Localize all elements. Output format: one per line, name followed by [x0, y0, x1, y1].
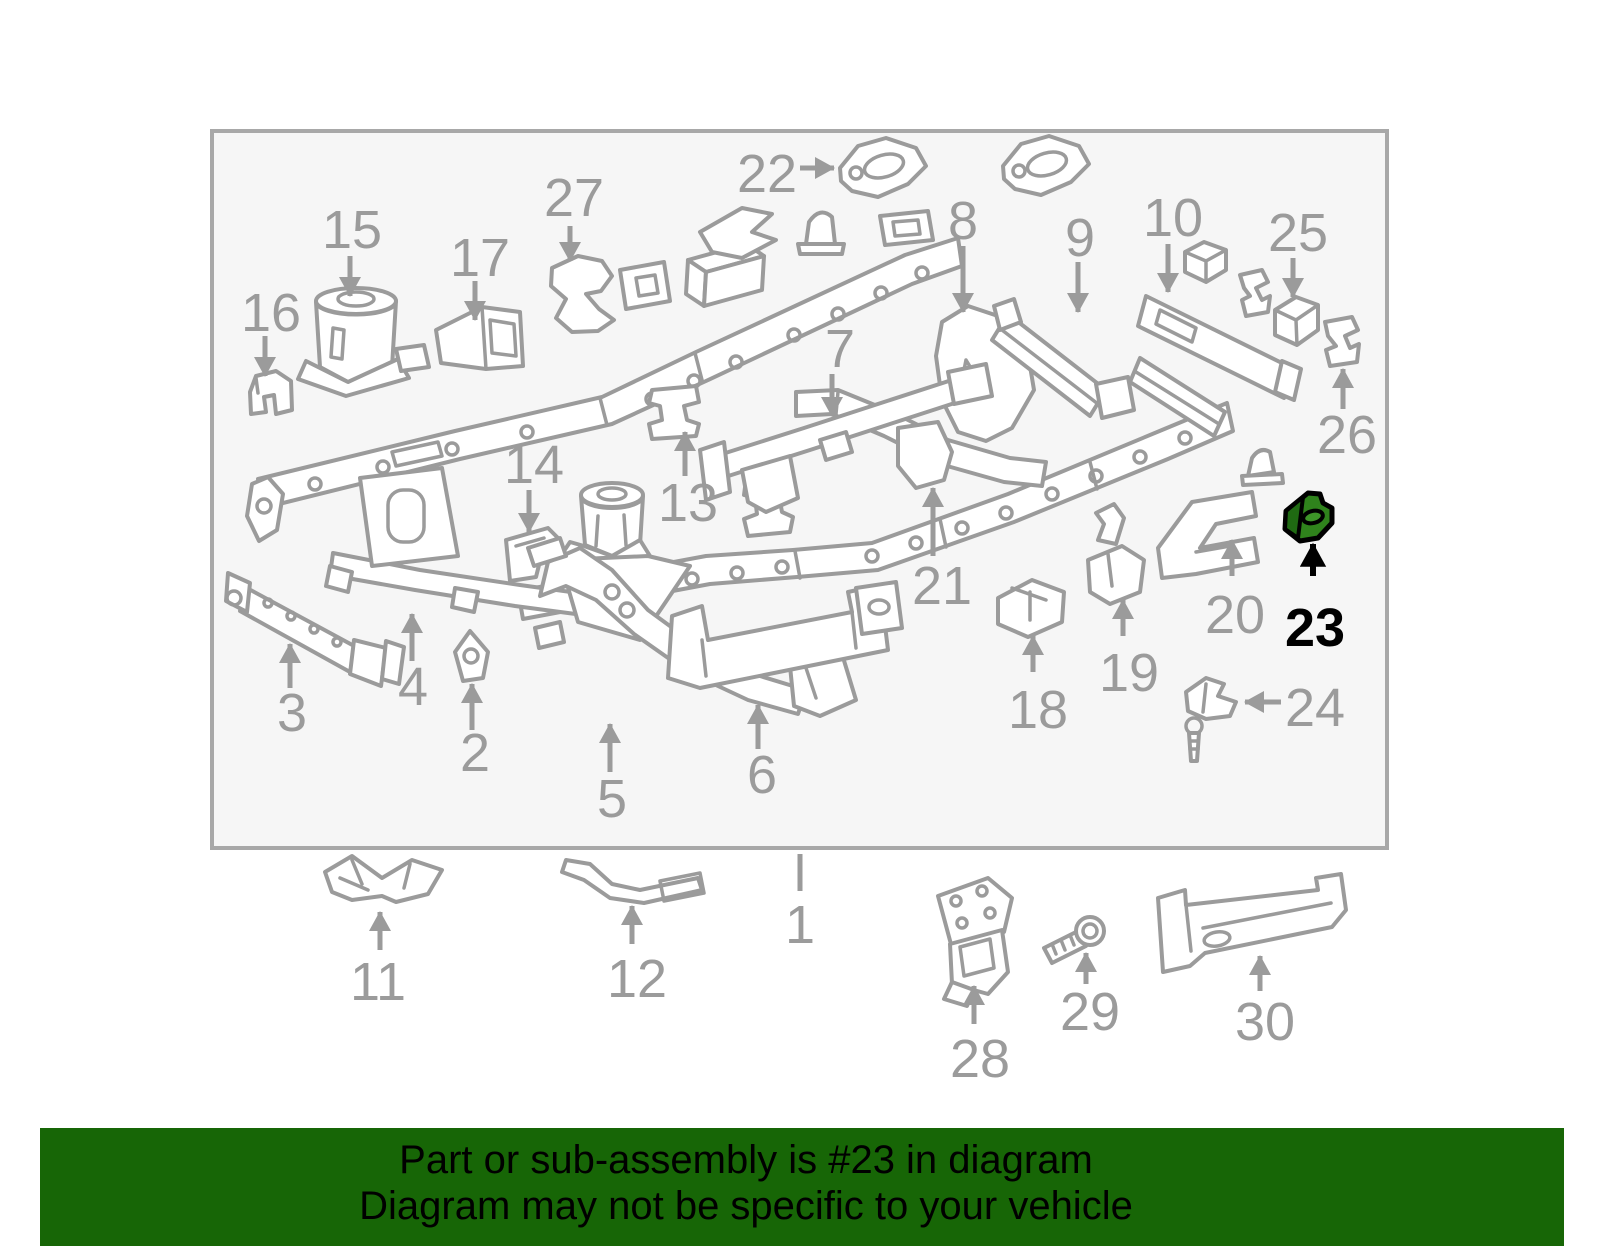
part-label-25: 25 — [1268, 203, 1328, 263]
part-label-14: 14 — [504, 435, 564, 495]
banner-line2: Diagram may not be specific to your vehi… — [40, 1183, 1452, 1229]
part-label-26: 26 — [1317, 405, 1377, 465]
part-label-6: 6 — [747, 745, 777, 805]
part-30-drawing — [1158, 874, 1346, 972]
part-label-27: 27 — [544, 168, 604, 228]
part-label-7: 7 — [825, 319, 855, 379]
part-label-16: 16 — [241, 283, 301, 343]
part-label-19: 19 — [1099, 643, 1159, 703]
part-label-15: 15 — [322, 200, 382, 260]
part-label-21: 21 — [912, 556, 972, 616]
part-label-20: 20 — [1205, 585, 1265, 645]
part-label-29: 29 — [1060, 982, 1120, 1042]
part-label-12: 12 — [607, 949, 667, 1009]
part-label-18: 18 — [1008, 680, 1068, 740]
part-label-28: 28 — [950, 1029, 1010, 1089]
part-label-24: 24 — [1285, 678, 1345, 738]
part-label-11: 11 — [350, 952, 406, 1012]
part-label-3: 3 — [277, 683, 307, 743]
part-label-4: 4 — [398, 657, 428, 717]
part-label-10: 10 — [1143, 188, 1203, 248]
part-12-drawing — [562, 860, 704, 903]
part-label-1: 1 — [785, 895, 815, 955]
part-11-drawing — [325, 856, 442, 902]
part-label-30: 30 — [1235, 992, 1295, 1052]
diagram-canvas: 1234567891011121314151617181920212223242… — [0, 0, 1600, 1249]
part-29-drawing — [1044, 917, 1104, 963]
part-label-23: 23 — [1285, 598, 1345, 658]
highlight-banner: Part or sub-assembly is #23 in diagram D… — [40, 1128, 1564, 1246]
part-label-8: 8 — [948, 191, 978, 251]
parts-diagram-page: 1234567891011121314151617181920212223242… — [0, 0, 1600, 1249]
part-label-2: 2 — [460, 723, 490, 783]
part-label-9: 9 — [1065, 208, 1095, 268]
part-label-13: 13 — [658, 473, 718, 533]
part-label-17: 17 — [450, 228, 510, 288]
part-label-5: 5 — [597, 769, 627, 829]
part-label-22: 22 — [737, 144, 797, 204]
banner-line1: Part or sub-assembly is #23 in diagram — [40, 1137, 1452, 1183]
